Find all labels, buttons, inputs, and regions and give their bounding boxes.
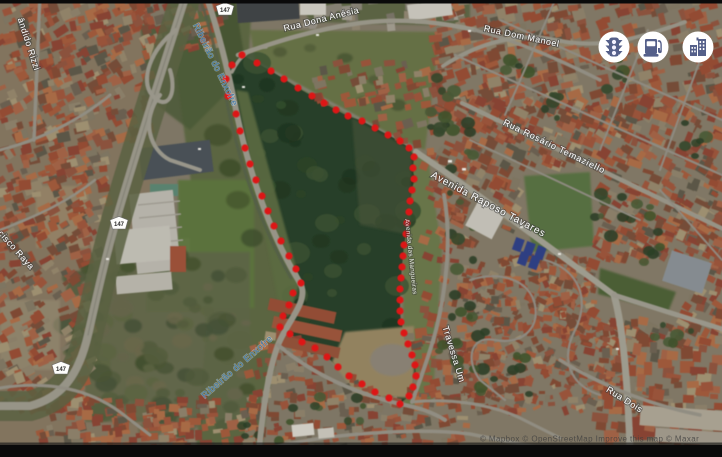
svg-text:147: 147 [56,367,67,373]
svg-text:147: 147 [114,222,125,228]
svg-text:147: 147 [220,8,231,14]
svg-text:© Mapbox © OpenStreetMap Impro: © Mapbox © OpenStreetMap Improve this ma… [480,435,699,444]
